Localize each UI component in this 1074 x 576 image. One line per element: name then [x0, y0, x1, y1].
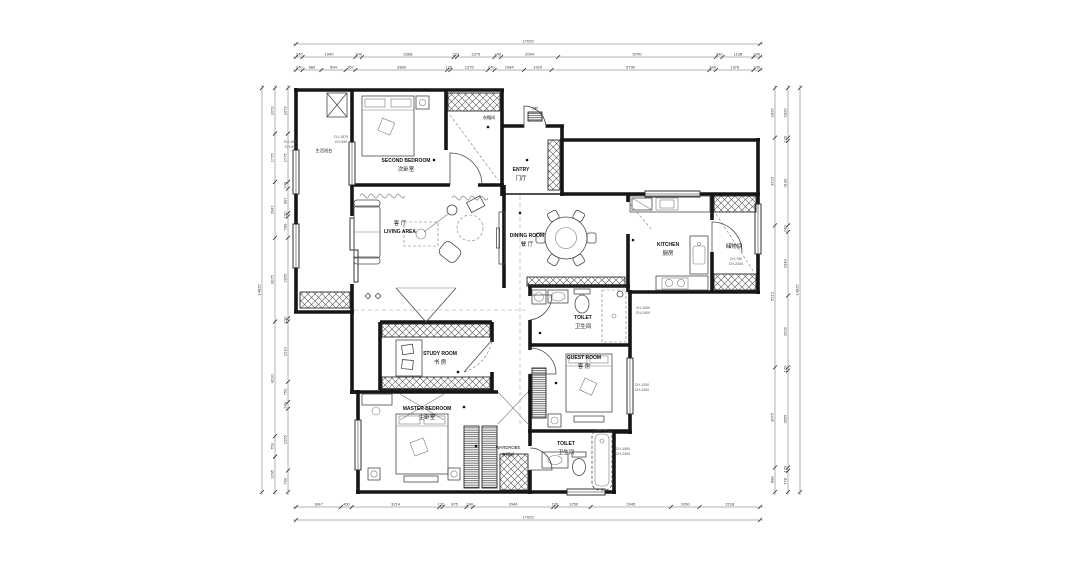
note-guest-win-2: CH-2400 [636, 311, 650, 315]
dim-top-row1: 2401940240336812013752402094579024011382… [293, 52, 763, 60]
cooktop [662, 278, 688, 289]
dimension-value: 3555 [783, 414, 788, 424]
toilet-bowl-1 [575, 295, 589, 313]
dimension-value: 120 [283, 211, 288, 218]
dimension-value: 120 [783, 365, 788, 372]
note-guest-win-1: CH-1500 [636, 306, 650, 310]
dimension-value: 3075 [270, 274, 275, 284]
note-balcony-b-1: CU-1875 [334, 135, 348, 139]
label-kitchen-en: KITCHEN [657, 242, 680, 248]
wardrobe-shelving-1 [464, 426, 479, 488]
note-storage-win-1: CH-780 [730, 257, 742, 261]
dim-bottom-total: 17025 [293, 515, 763, 523]
dimension-value: 1295 [270, 469, 275, 479]
dimension-value: 1775 [270, 153, 275, 163]
toilet-lower-fixtures [530, 430, 612, 490]
dimension-value: 1820 [770, 108, 775, 118]
dim-left-total: 14825 [257, 85, 265, 495]
label-master-zh: 主卧室 [419, 413, 436, 421]
dimension-value: 240 [753, 65, 760, 70]
label-closet: 衣帽间 [483, 114, 496, 121]
label-master-en: MASTER BEDROOM [403, 406, 452, 412]
dimension-value: 120 [445, 65, 452, 70]
dimension-value: 907 [283, 197, 288, 204]
dimension-value: 240 [296, 52, 303, 57]
second-bedroom-door [450, 153, 482, 185]
closet-wardrobe-cabinet [448, 93, 500, 111]
dimension-value: 2218 [725, 502, 735, 507]
dimension-value: 240 [466, 502, 473, 507]
dimension-value: 240 [355, 52, 362, 57]
dimension-value: 1647 [314, 502, 324, 507]
dimension-value: 875 [451, 502, 458, 507]
dimension-value: 2946 [509, 502, 519, 507]
dimension-value: 1673 [270, 106, 275, 116]
wardrobe-xcabinet [500, 454, 528, 490]
dimension-value: 14825 [257, 284, 262, 296]
closet-diagonal [450, 115, 498, 180]
note-bath-win-1: CH-1500 [616, 447, 630, 451]
note-balcony-a-1: CU-1875 [284, 140, 298, 144]
kitchen-sink [693, 246, 705, 264]
toilet-bowl-2 [573, 459, 586, 476]
dimension-value: 2632 [783, 326, 788, 336]
label-toilet-lower-en: TOILET [557, 441, 575, 447]
plant-row-1 [360, 194, 405, 198]
dimension-value: 780 [283, 223, 288, 230]
dimension-value: 778 [783, 477, 788, 484]
dimension-value: 5790 [633, 52, 643, 57]
dimension-value: 240 [709, 65, 716, 70]
dimension-value: 1940 [325, 52, 335, 57]
dim-top-row2: 2406898943573368120137524010841010579024… [293, 65, 763, 73]
dimension-value: 898 [770, 476, 775, 483]
dimension-value: 120 [452, 52, 459, 57]
label-entry-zh: 门厅 [515, 174, 527, 182]
washing-machine [532, 290, 546, 304]
dimension-value: 240 [488, 65, 495, 70]
dimension-value: 2340 [783, 259, 788, 269]
label-toilet-upper-en: TOILET [574, 315, 592, 321]
master-bench [404, 476, 438, 482]
label-toilet-upper-zh: 卫生间 [575, 322, 592, 330]
dimension-value: 240 [716, 52, 723, 57]
guest-wardrobe [532, 368, 546, 418]
study-desk [396, 340, 422, 376]
label-balcony: 生活阳台 [316, 147, 333, 154]
second-bedroom-bed [362, 96, 429, 156]
label-guest-zh: 客 房 [578, 362, 591, 370]
bed-bench [574, 416, 604, 422]
master-door-swing [498, 392, 528, 424]
dimension-value: 5790 [626, 65, 636, 70]
dimension-value: 3675 [770, 412, 775, 422]
armchair [437, 240, 463, 265]
dimension-value: 1820 [783, 108, 788, 118]
living-corridor-door [365, 288, 456, 322]
label-kitchen-zh: 厨房 [662, 249, 674, 257]
dimension-value: 240 [283, 181, 288, 188]
dimension-value: 750 [283, 388, 288, 395]
label-dining-zh: 餐 厅 [521, 240, 534, 248]
label-storage: 储物间 [726, 242, 743, 250]
dimension-value: 4210 [270, 374, 275, 384]
floor-plan-page: 生活阳台 SECOND BEDROOM 次卧室 衣帽间 ENTRY 门厅 AP … [0, 0, 1074, 576]
dimension-value: 1010 [533, 65, 543, 70]
dimension-value: 1084 [505, 65, 515, 70]
study-furniture [396, 340, 492, 376]
study-door [464, 340, 492, 372]
shower-area [602, 290, 626, 342]
dim-left-col1: 167317752047307542107501295 [270, 85, 278, 495]
label-second-bedroom-en: SECOND BEDROOM [382, 158, 431, 164]
dimension-value: 1375 [471, 52, 481, 57]
dim-right-total: 14825 [795, 85, 803, 495]
label-second-bedroom-zh: 次卧室 [398, 165, 415, 173]
dim-right-col1: 1820322052123675898 [770, 85, 778, 495]
note-balcony-a-2: CH-990 [285, 145, 297, 149]
note-toilet-win-2: CH-2400 [635, 388, 649, 392]
storage-cabinet-bottom [714, 274, 756, 290]
dining-sideboard [527, 277, 625, 286]
dimension-value: 120 [438, 502, 445, 507]
dining-table [536, 210, 596, 267]
master-bed [396, 414, 448, 474]
label-wardrobe-en: WARDROBE [496, 445, 521, 450]
dimension-value: 120 [783, 465, 788, 472]
label-entry-en: ENTRY [513, 167, 530, 173]
dimension-value: 3220 [770, 176, 775, 186]
dimension-value: 17025 [522, 39, 534, 44]
dimension-value: 3214 [391, 502, 401, 507]
dimension-value: 3368 [403, 52, 413, 57]
label-wardrobe-zh: 衣帽间 [502, 451, 515, 458]
dim-top-total: 17025 [293, 39, 763, 47]
dimension-value: 790 [283, 477, 288, 484]
dimension-value: 3100 [783, 178, 788, 188]
dimension-value: 120 [783, 135, 788, 142]
dimension-value: 1375 [465, 65, 475, 70]
dimension-value: 1138 [734, 52, 743, 57]
walls [294, 88, 760, 494]
dimension-value: 14825 [795, 284, 800, 296]
note-storage-win-2: CH-2340 [729, 262, 743, 266]
entry-shoe-cabinet [548, 140, 560, 190]
dimension-value: 3368 [397, 65, 407, 70]
study-bookshelf-top [382, 324, 490, 337]
side-table [466, 196, 484, 213]
dimension-value: 750 [270, 442, 275, 449]
note-toilet-win-1: CH-1200 [635, 383, 649, 387]
floor-lamp [447, 205, 457, 215]
plant-row-2 [452, 196, 488, 200]
dimension-value: 240 [783, 225, 788, 232]
dimension-value: 1775 [283, 153, 288, 163]
shower-head [617, 291, 623, 297]
floor-plan-canvas: 生活阳台 SECOND BEDROOM 次卧室 衣帽间 ENTRY 门厅 AP … [0, 0, 1074, 576]
label-living-zh: 客 厅 [394, 219, 407, 227]
label-living-en: LIVING AREA [384, 229, 416, 235]
label-study-en: STUDY ROOM [423, 351, 457, 357]
dimension-value: 2955 [283, 273, 288, 283]
label-ap: AP [532, 106, 538, 111]
dimension-value: 689 [309, 65, 316, 70]
note-bath-win-2: CH-2400 [616, 452, 630, 456]
dimension-value: 1250 [569, 502, 579, 507]
balcony-cabinet [300, 292, 350, 308]
dimension-value: 2945 [626, 502, 636, 507]
dimension-value: 2047 [270, 205, 275, 215]
dimension-value: 2094 [525, 52, 535, 57]
dimension-value: 1050 [681, 502, 691, 507]
label-study-zh: 书 房 [434, 358, 447, 366]
label-toilet-lower-zh: 卫生间 [558, 448, 575, 456]
dimension-value: 120 [552, 502, 559, 507]
dimension-value: 357 [347, 65, 354, 70]
dimension-value: 240 [494, 52, 501, 57]
study-bookshelf-bottom [382, 377, 490, 390]
dresser [362, 394, 392, 405]
note-balcony-b-2: CH-990 [335, 140, 347, 144]
label-dining-en: DINING ROOM [510, 233, 544, 239]
dimension-value: 894 [330, 65, 337, 70]
dimension-value: 1673 [283, 106, 288, 116]
dimension-value: 240 [753, 52, 760, 57]
toilet-tank-1 [574, 289, 590, 294]
guest-nightstand [548, 414, 561, 427]
dimension-value: 2210 [283, 346, 288, 356]
label-guest-en: GUEST ROOM [567, 355, 601, 361]
dimension-value: 2265 [283, 434, 288, 444]
storage-cabinet-top [714, 196, 756, 212]
dimension-value: 1378 [730, 65, 740, 70]
dimension-value: 17025 [522, 515, 534, 520]
dimension-value: 120 [283, 316, 288, 323]
dimension-value: 240 [296, 65, 303, 70]
ap-box [528, 112, 542, 121]
rug [457, 215, 483, 241]
living-furniture [354, 194, 505, 264]
dimension-value: 240 [283, 401, 288, 408]
dimension-value: 400 [343, 502, 350, 507]
toilet-lower-door [530, 448, 552, 470]
dim-right-col2: 18201203100240234026321203555120778 [783, 85, 791, 495]
dimension-value: 5212 [770, 291, 775, 301]
dim-bottom-row1: 1647400321412087524029461201250294510502… [293, 502, 763, 510]
wardrobe-shelving-2 [482, 426, 497, 488]
stool [372, 407, 380, 415]
toilet-upper-door [530, 295, 552, 320]
